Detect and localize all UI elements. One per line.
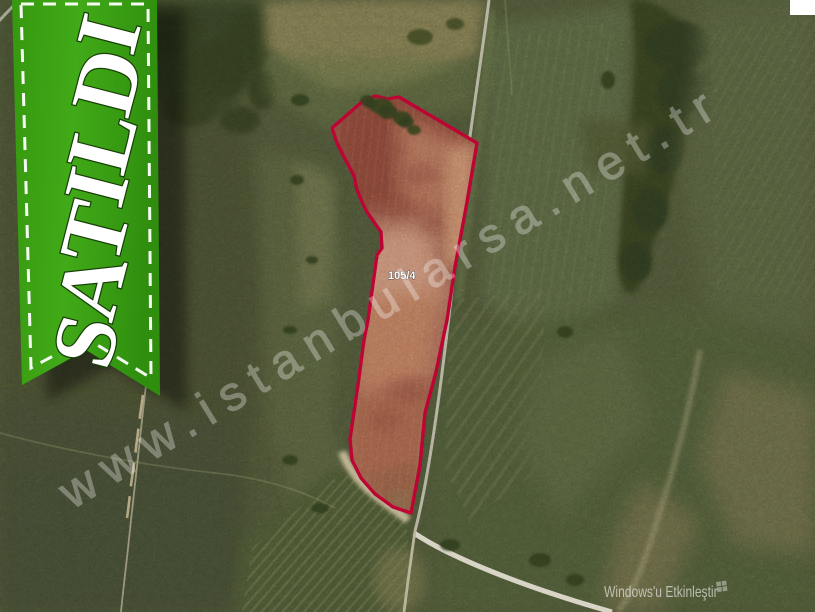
svg-text:Windows'u Etkinleştir: Windows'u Etkinleştir — [604, 583, 718, 601]
